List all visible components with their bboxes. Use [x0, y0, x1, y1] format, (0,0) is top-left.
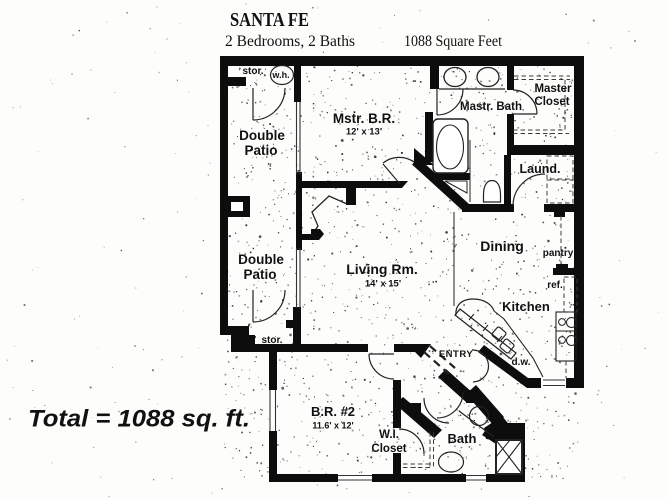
svg-text:Laund.: Laund. [520, 162, 561, 176]
svg-text:w.h.: w.h. [271, 70, 289, 80]
svg-text:2 Bedrooms, 2 Baths: 2 Bedrooms, 2 Baths [225, 33, 355, 50]
svg-text:Patio: Patio [244, 143, 277, 158]
svg-text:Patio: Patio [243, 267, 276, 282]
svg-text:Bath: Bath [448, 431, 477, 446]
svg-text:SANTA FE: SANTA FE [230, 10, 309, 31]
svg-text:1088 Square Feet: 1088 Square Feet [404, 33, 502, 50]
svg-text:Double: Double [238, 252, 284, 267]
svg-text:Mstr. B.R.: Mstr. B.R. [333, 111, 395, 126]
svg-text:Master: Master [534, 83, 572, 95]
svg-text:ENTRY: ENTRY [439, 349, 474, 360]
svg-text:Living Rm.: Living Rm. [346, 261, 418, 277]
svg-text:Mastr. Bath: Mastr. Bath [460, 101, 522, 113]
svg-text:14' x 15': 14' x 15' [365, 279, 401, 290]
svg-text:Dining: Dining [480, 238, 524, 254]
svg-text:W.I.: W.I. [379, 429, 399, 441]
svg-text:Total = 1088 sq. ft.: Total = 1088 sq. ft. [28, 406, 250, 433]
svg-text:ref.: ref. [547, 280, 563, 291]
svg-text:12' x 13': 12' x 13' [346, 127, 382, 138]
svg-text:Closet: Closet [371, 443, 406, 455]
svg-text:stor.: stor. [242, 66, 263, 77]
svg-text:Double: Double [239, 128, 285, 143]
svg-text:pantry: pantry [543, 248, 574, 259]
svg-text:B.R. #2: B.R. #2 [311, 404, 355, 419]
svg-text:Kitchen: Kitchen [502, 299, 550, 314]
svg-text:d.w.: d.w. [511, 357, 530, 368]
svg-text:11.6' x 12': 11.6' x 12' [312, 421, 353, 431]
svg-text:Closet: Closet [534, 96, 569, 108]
svg-text:stor.: stor. [261, 335, 282, 346]
